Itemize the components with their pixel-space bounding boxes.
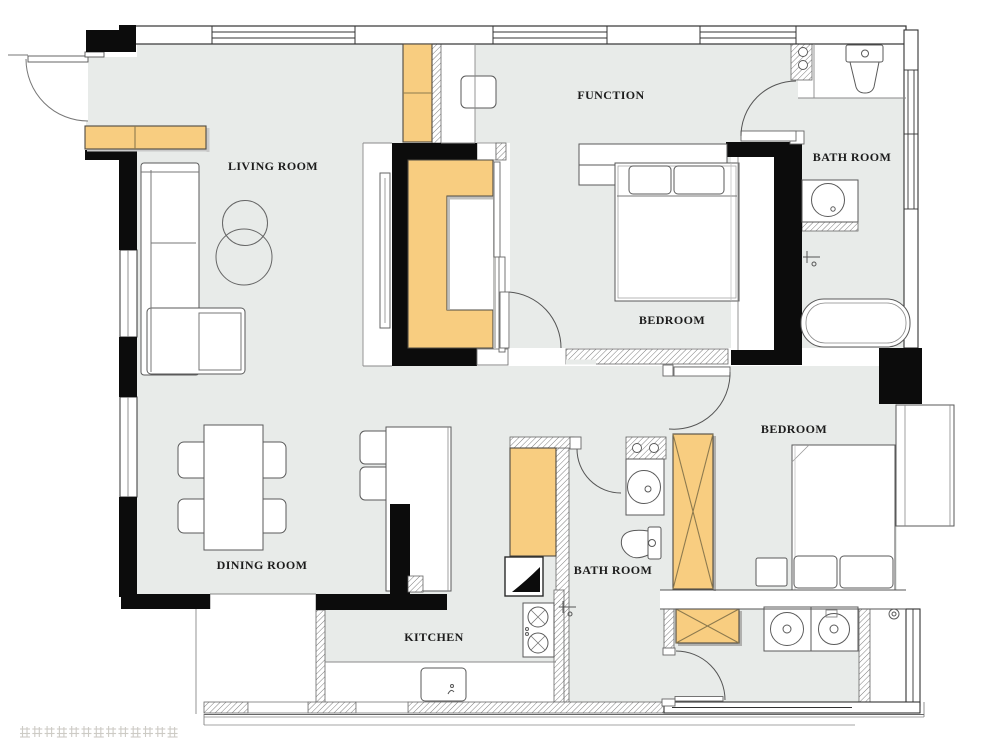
svg-text:BATH ROOM: BATH ROOM xyxy=(574,563,652,577)
svg-text:DINING ROOM: DINING ROOM xyxy=(217,558,308,572)
svg-text:FUNCTION: FUNCTION xyxy=(577,88,644,102)
svg-text:BEDROOM: BEDROOM xyxy=(761,422,827,436)
svg-text:LIVING ROOM: LIVING ROOM xyxy=(228,159,318,173)
svg-text:BEDROOM: BEDROOM xyxy=(639,313,705,327)
svg-text:BATH ROOM: BATH ROOM xyxy=(813,150,891,164)
svg-text:KITCHEN: KITCHEN xyxy=(404,630,463,644)
